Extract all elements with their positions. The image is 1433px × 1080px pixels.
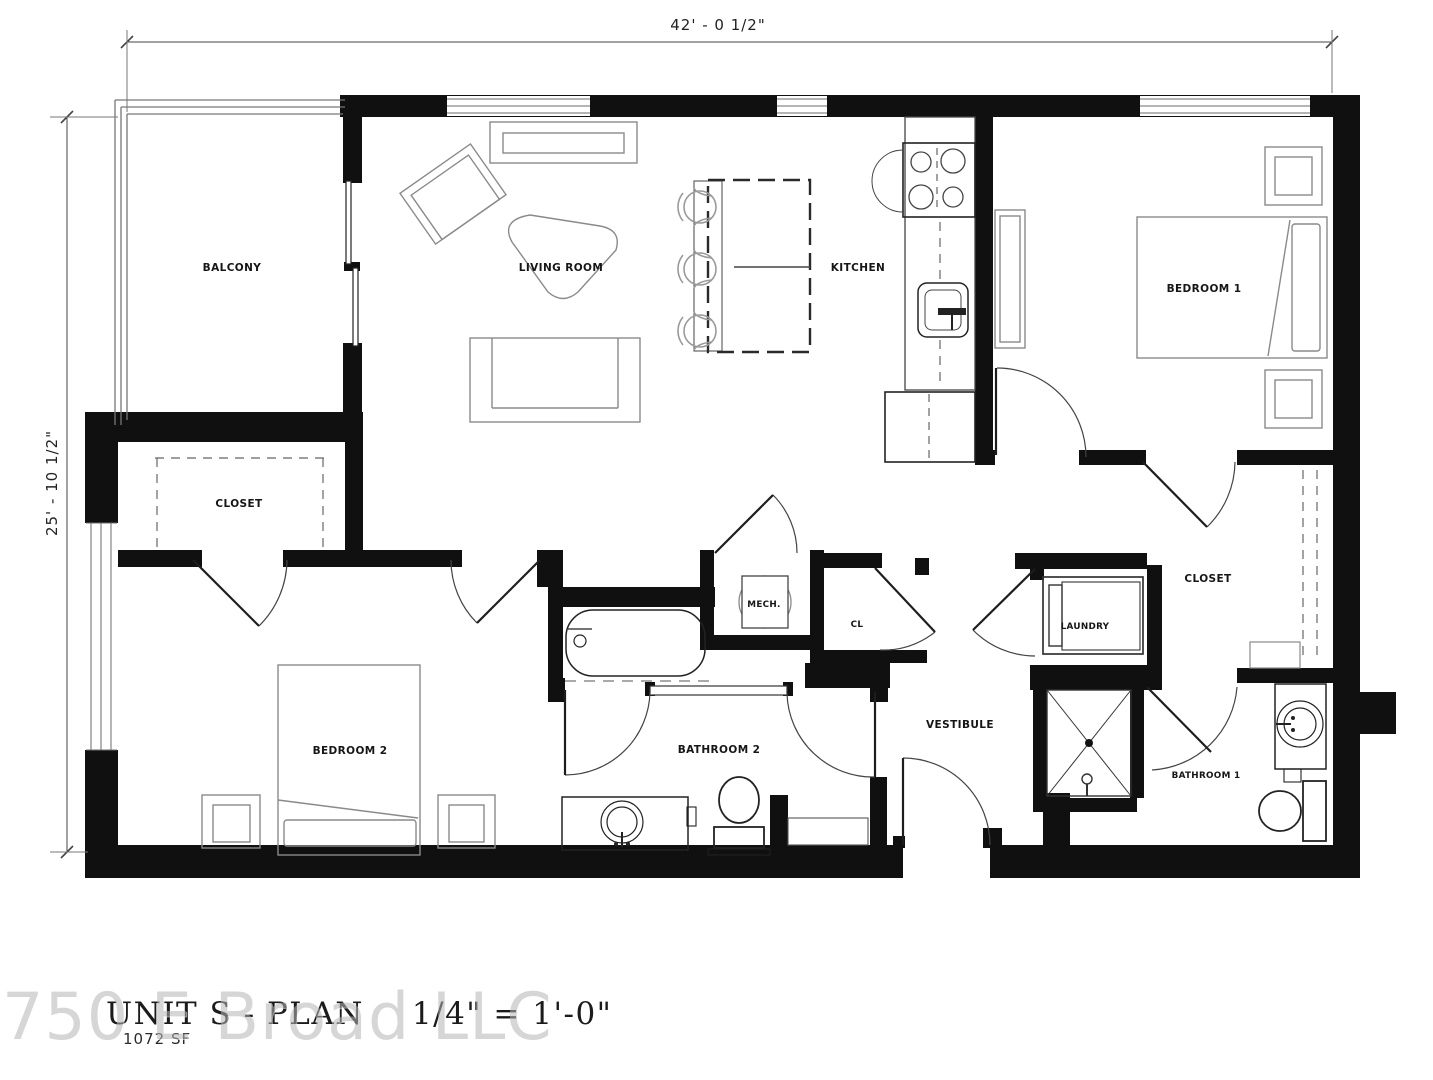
- laundry-door-arc: [973, 630, 1035, 656]
- bathroom2-right-door-arc: [787, 694, 875, 777]
- toilet-icon: [708, 777, 770, 855]
- window-bedroom1: [1140, 96, 1310, 116]
- plan-area: 1072 SF: [123, 1030, 191, 1048]
- closet2-door-arc: [259, 560, 287, 626]
- sofa: [470, 338, 640, 422]
- vestibule-label: VESTIBULE: [926, 719, 994, 731]
- window-kitchen: [777, 96, 827, 116]
- shower: [1047, 690, 1131, 796]
- bathroom2-left-door-arc: [565, 692, 650, 775]
- floor-plan-drawing: BALCONY LIVING ROOM KITCHEN BEDROOM 1 CL…: [0, 0, 1433, 1080]
- dresser: [995, 210, 1025, 348]
- tv-console: [490, 122, 637, 163]
- bedroom2-door-arc: [451, 560, 477, 623]
- coffee-table: [509, 215, 618, 299]
- range-icon: [872, 143, 975, 217]
- interior-walls: [118, 115, 1333, 878]
- bedroom1-label: BEDROOM 1: [1167, 283, 1242, 295]
- living-room-label: LIVING ROOM: [519, 262, 603, 274]
- bathroom1-door-panel: [1147, 687, 1211, 752]
- bedroom2-label: BEDROOM 2: [313, 745, 388, 757]
- dimension-height-label: 25' - 10 1/2": [43, 430, 61, 536]
- cl-door-arc: [880, 632, 935, 650]
- bedroom1-furniture: [995, 147, 1327, 428]
- plan-title: UNIT S - PLAN: [106, 996, 364, 1032]
- mech-label: MECH.: [747, 600, 780, 610]
- mech-door-panel: [715, 495, 773, 553]
- bathroom1-fixtures: [1259, 684, 1326, 841]
- bedroom2-door-panel: [477, 560, 540, 623]
- toilet-icon: [1259, 781, 1326, 841]
- vanity-sink-icon: [1275, 684, 1326, 782]
- entry-door-arc: [903, 758, 990, 845]
- nightstand: [1265, 147, 1322, 205]
- washer-dryer-icon: [1043, 577, 1143, 654]
- bed-2: [278, 665, 420, 855]
- floor-plan-page: BALCONY LIVING ROOM KITCHEN BEDROOM 1 CL…: [0, 0, 1433, 1080]
- plan-scale: 1/4" = 1'-0": [412, 996, 613, 1032]
- bedroom1-door-arc: [997, 368, 1086, 457]
- bar-stools: [678, 188, 716, 350]
- kitchen-sink-icon: [918, 283, 968, 337]
- shower-drain-icon: [1082, 774, 1092, 784]
- bathroom1-label: BATHROOM 1: [1172, 771, 1241, 781]
- nightstand: [1265, 370, 1322, 428]
- laundry-label: LAUNDRY: [1061, 622, 1110, 632]
- mech-door-arc: [773, 495, 797, 553]
- kitchen-label: KITCHEN: [831, 262, 885, 274]
- window-living-room: [447, 96, 590, 116]
- dimensions: [50, 30, 1338, 858]
- title-block: UNIT S - PLAN 1/4" = 1'-0": [106, 996, 612, 1032]
- closet-bedroom2-label: CLOSET: [215, 498, 263, 510]
- exterior-walls: [85, 95, 1396, 878]
- cl-door-panel: [875, 568, 935, 632]
- bathroom1-door-arc: [1152, 687, 1237, 770]
- vanity-sink-icon: [562, 797, 696, 850]
- closet2-door-panel: [193, 560, 259, 626]
- bathroom2-plumbing-wall: [650, 686, 787, 695]
- laundry-fixtures: [1043, 577, 1143, 654]
- kitchen-island: [694, 180, 810, 352]
- window-bedroom2: [86, 523, 117, 750]
- dimension-width-label: 42' - 0 1/2": [670, 16, 766, 34]
- nightstand: [202, 795, 260, 848]
- bathtub-icon: [565, 610, 710, 681]
- balcony-label: BALCONY: [203, 262, 262, 274]
- kitchen-fixtures: [678, 117, 975, 462]
- bench: [788, 818, 868, 845]
- laundry-door-panel: [973, 569, 1035, 630]
- nightstand: [438, 795, 495, 848]
- cl-label: CL: [851, 620, 864, 630]
- closet-walkin-label: CLOSET: [1184, 573, 1232, 585]
- refrigerator-icon: [885, 392, 975, 462]
- bedroom2-furniture: [202, 665, 495, 855]
- bathroom2-label: BATHROOM 2: [678, 744, 761, 756]
- walkin-closet-door-arc: [1207, 462, 1235, 527]
- walkin-closet-door-panel: [1143, 462, 1207, 527]
